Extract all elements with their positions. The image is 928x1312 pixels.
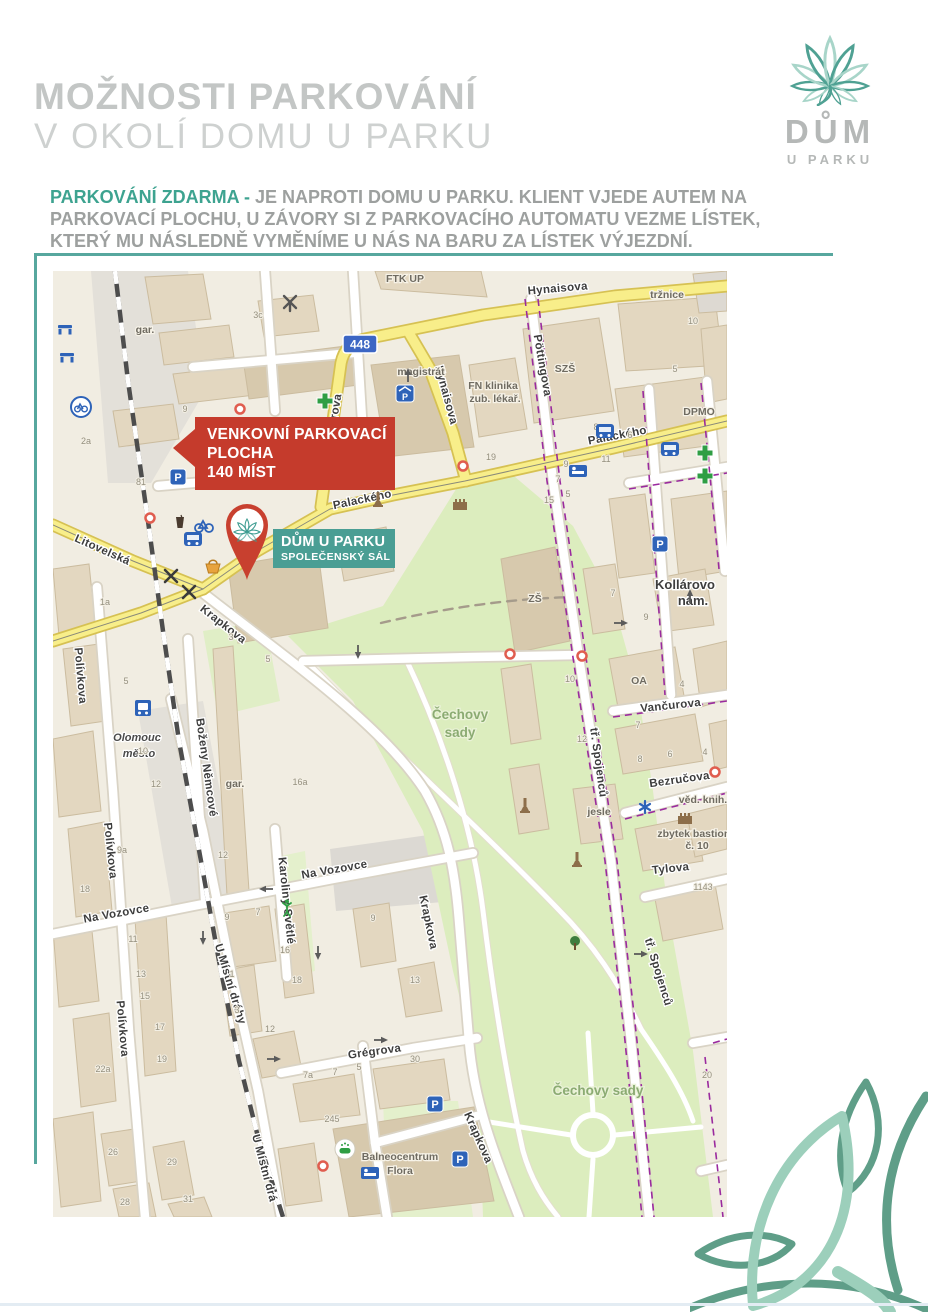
area-label: Balneocentrum — [362, 1151, 438, 1163]
house-number: 81 — [136, 477, 146, 487]
house-number: 17 — [155, 1022, 165, 1032]
house-number: 9a — [117, 845, 127, 855]
area-label: ZŠ — [528, 592, 541, 605]
house-number: 7a — [303, 1070, 313, 1080]
barrier-icon — [236, 405, 245, 414]
parking-icon: P — [652, 536, 668, 552]
area-label: Čechovy — [432, 707, 489, 722]
house-number: 31 — [183, 1194, 193, 1204]
area-label: gar. — [136, 324, 155, 336]
house-number: 3 — [234, 1005, 239, 1015]
logo-subname: U PARKU — [745, 152, 915, 167]
area-label: gar. — [226, 778, 245, 790]
area-label: FN klinika — [468, 380, 518, 392]
leaf-decoration-icon — [690, 1060, 928, 1312]
teal-rule-horizontal — [34, 253, 833, 256]
venue-map-pin-icon — [218, 496, 276, 584]
tram-icon — [184, 532, 202, 546]
house-number: 3c — [253, 310, 263, 320]
house-number: 11 — [128, 934, 137, 944]
parking-roof-icon: P — [396, 385, 414, 402]
area-label: FTK UP — [386, 273, 424, 285]
house-number: 2a — [81, 436, 91, 446]
house-number: 10 — [688, 316, 698, 326]
house-number: 9 — [563, 459, 568, 469]
barrier-icon — [459, 462, 468, 471]
house-number: 16a — [292, 777, 307, 787]
area-label: jesle — [586, 806, 611, 818]
house-number: 12 — [577, 734, 587, 744]
house-number: 29 — [167, 1157, 177, 1167]
parking-callout-line3: 140 MÍST — [207, 463, 395, 482]
house-number: 4 — [702, 747, 707, 757]
area-label: SZŠ — [555, 362, 575, 375]
bikeshare-icon — [71, 397, 91, 417]
house-number: 19 — [157, 1054, 167, 1064]
street-label: nám. — [678, 593, 708, 608]
venue-callout-line2: SPOLEČENSKÝ SÁL — [281, 551, 391, 563]
house-number: 5 — [356, 1062, 361, 1072]
bed-icon — [569, 465, 587, 477]
house-number: 5 — [672, 364, 677, 374]
page-title: MOŽNOSTI PARKOVÁNÍ V OKOLÍ DOMU U PARKU — [34, 76, 493, 157]
house-number: 13 — [410, 975, 420, 985]
intro-line3: KTERÝ MU NÁSLEDNĚ VYMĚNÍME U NÁS NA BARU… — [50, 230, 850, 252]
venue-callout-line1: DŮM U PARKU — [281, 534, 391, 551]
area-label: zub. lékař. — [469, 393, 520, 405]
house-number: 19 — [486, 452, 496, 462]
house-number: 8 — [637, 754, 642, 764]
parking-callout: VENKOVNÍ PARKOVACÍ PLOCHA 140 MÍST — [195, 417, 395, 490]
house-number: 15 — [544, 495, 554, 505]
page-bottom-edge — [0, 1303, 928, 1306]
house-number: 28 — [120, 1197, 130, 1207]
tram-icon — [661, 442, 679, 456]
barrier-icon — [146, 514, 155, 523]
house-number: 9 — [643, 612, 648, 622]
barrier-icon — [319, 1162, 328, 1171]
teal-rule-vertical — [34, 253, 37, 1164]
svg-text:P: P — [174, 472, 181, 484]
barrier-icon — [711, 768, 720, 777]
svg-text:P: P — [402, 392, 408, 402]
house-number: 5 — [123, 676, 128, 686]
parking-callout-line1: VENKOVNÍ PARKOVACÍ — [207, 425, 395, 444]
house-number: 12 — [218, 850, 228, 860]
area-label: magistrát — [397, 366, 445, 378]
house-number: 1a — [100, 597, 110, 607]
map-canvas: 448 HynaisovaHynaisovaWellnerovaPöttingo… — [53, 271, 727, 1217]
house-number: 11 — [601, 454, 610, 464]
area-label: zbytek bastionu — [657, 828, 727, 840]
parking-icon: P — [427, 1096, 443, 1112]
house-number: 15 — [140, 991, 150, 1001]
house-number: 18 — [80, 884, 90, 894]
house-number: 10 — [565, 674, 575, 684]
parking-icon: P — [170, 469, 186, 485]
logo-name: DŮM — [745, 113, 915, 151]
bed-icon — [361, 1167, 379, 1179]
house-number: 4 — [679, 679, 684, 689]
house-number: 9 — [370, 913, 375, 923]
intro-highlight: PARKOVÁNÍ ZDARMA - — [50, 187, 250, 207]
area-label: Flora — [387, 1165, 413, 1177]
area-label: sady — [445, 725, 476, 740]
brand-logo: DŮM U PARKU — [745, 6, 915, 167]
svg-text:P: P — [656, 539, 663, 551]
area-label: Čechovy sady — [553, 1083, 644, 1098]
castle-icon — [453, 499, 467, 510]
intro-paragraph: PARKOVÁNÍ ZDARMA - JE NAPROTI DOMU U PAR… — [50, 186, 850, 252]
intro-line1: JE NAPROTI DOMU U PARKU. KLIENT VJEDE AU… — [255, 187, 747, 207]
house-number: 245 — [324, 1114, 339, 1124]
house-number: 7 — [332, 1067, 337, 1077]
intro-line2: PARKOVACÍ PLOCHU, U ZÁVORY SI Z PARKOVAC… — [50, 208, 850, 230]
svg-text:P: P — [456, 1154, 463, 1166]
house-number: 18 — [292, 975, 302, 985]
house-number: 5 — [565, 489, 570, 499]
logo-tree-icon — [745, 6, 915, 106]
area-label: č. 10 — [685, 840, 709, 852]
house-number: 3 — [228, 632, 233, 642]
city-map: 448 HynaisovaHynaisovaWellnerovaPöttingo… — [53, 271, 727, 1217]
house-number: 12 — [151, 779, 161, 789]
house-number: 10 — [138, 746, 148, 756]
house-number: 26 — [108, 1147, 118, 1157]
castle-icon — [678, 813, 692, 824]
title-line2: V OKOLÍ DOMU U PARKU — [34, 117, 493, 156]
house-number: 1 — [229, 969, 234, 979]
house-number: 16 — [280, 945, 290, 955]
house-number: 6 — [627, 430, 632, 440]
area-label: OA — [631, 675, 647, 687]
parking-icon: P — [452, 1151, 468, 1167]
route-badge-448: 448 — [343, 335, 377, 353]
svg-text:P: P — [431, 1099, 438, 1111]
house-number: 22a — [95, 1064, 110, 1074]
tram-icon — [596, 424, 614, 438]
area-label: DPMO — [683, 406, 715, 418]
house-number: 7 — [555, 474, 560, 484]
house-number: 6 — [667, 749, 672, 759]
train-icon — [135, 700, 151, 716]
street-label: Kollárovo — [655, 577, 715, 592]
house-number: 9 — [224, 912, 229, 922]
house-number: 13 — [136, 969, 146, 979]
house-number: 1143 — [693, 882, 712, 892]
title-line1: MOŽNOSTI PARKOVÁNÍ — [34, 76, 493, 117]
house-number: 7 — [610, 588, 615, 598]
house-number: 9 — [182, 404, 187, 414]
house-number: 30 — [410, 1054, 420, 1064]
house-number: 12 — [265, 1024, 275, 1034]
barrier-icon — [578, 652, 587, 661]
parking-callout-line2: PLOCHA — [207, 444, 395, 463]
flyer-page: { "page": { "title_line1": "MOŽNOSTI PAR… — [0, 0, 928, 1312]
area-label: Olomouc — [113, 732, 161, 744]
venue-callout: DŮM U PARKU SPOLEČENSKÝ SÁL — [273, 529, 395, 568]
house-number: 7 — [255, 907, 260, 917]
area-label: tržnice — [650, 289, 684, 301]
bath-icon — [335, 1139, 355, 1159]
house-number: 5 — [265, 654, 270, 664]
barrier-icon — [506, 650, 515, 659]
route-badge-text: 448 — [350, 338, 370, 352]
callout-arrow-left-icon — [173, 429, 195, 467]
area-label: věd. knih. — [679, 794, 727, 806]
house-number: 7 — [635, 720, 640, 730]
